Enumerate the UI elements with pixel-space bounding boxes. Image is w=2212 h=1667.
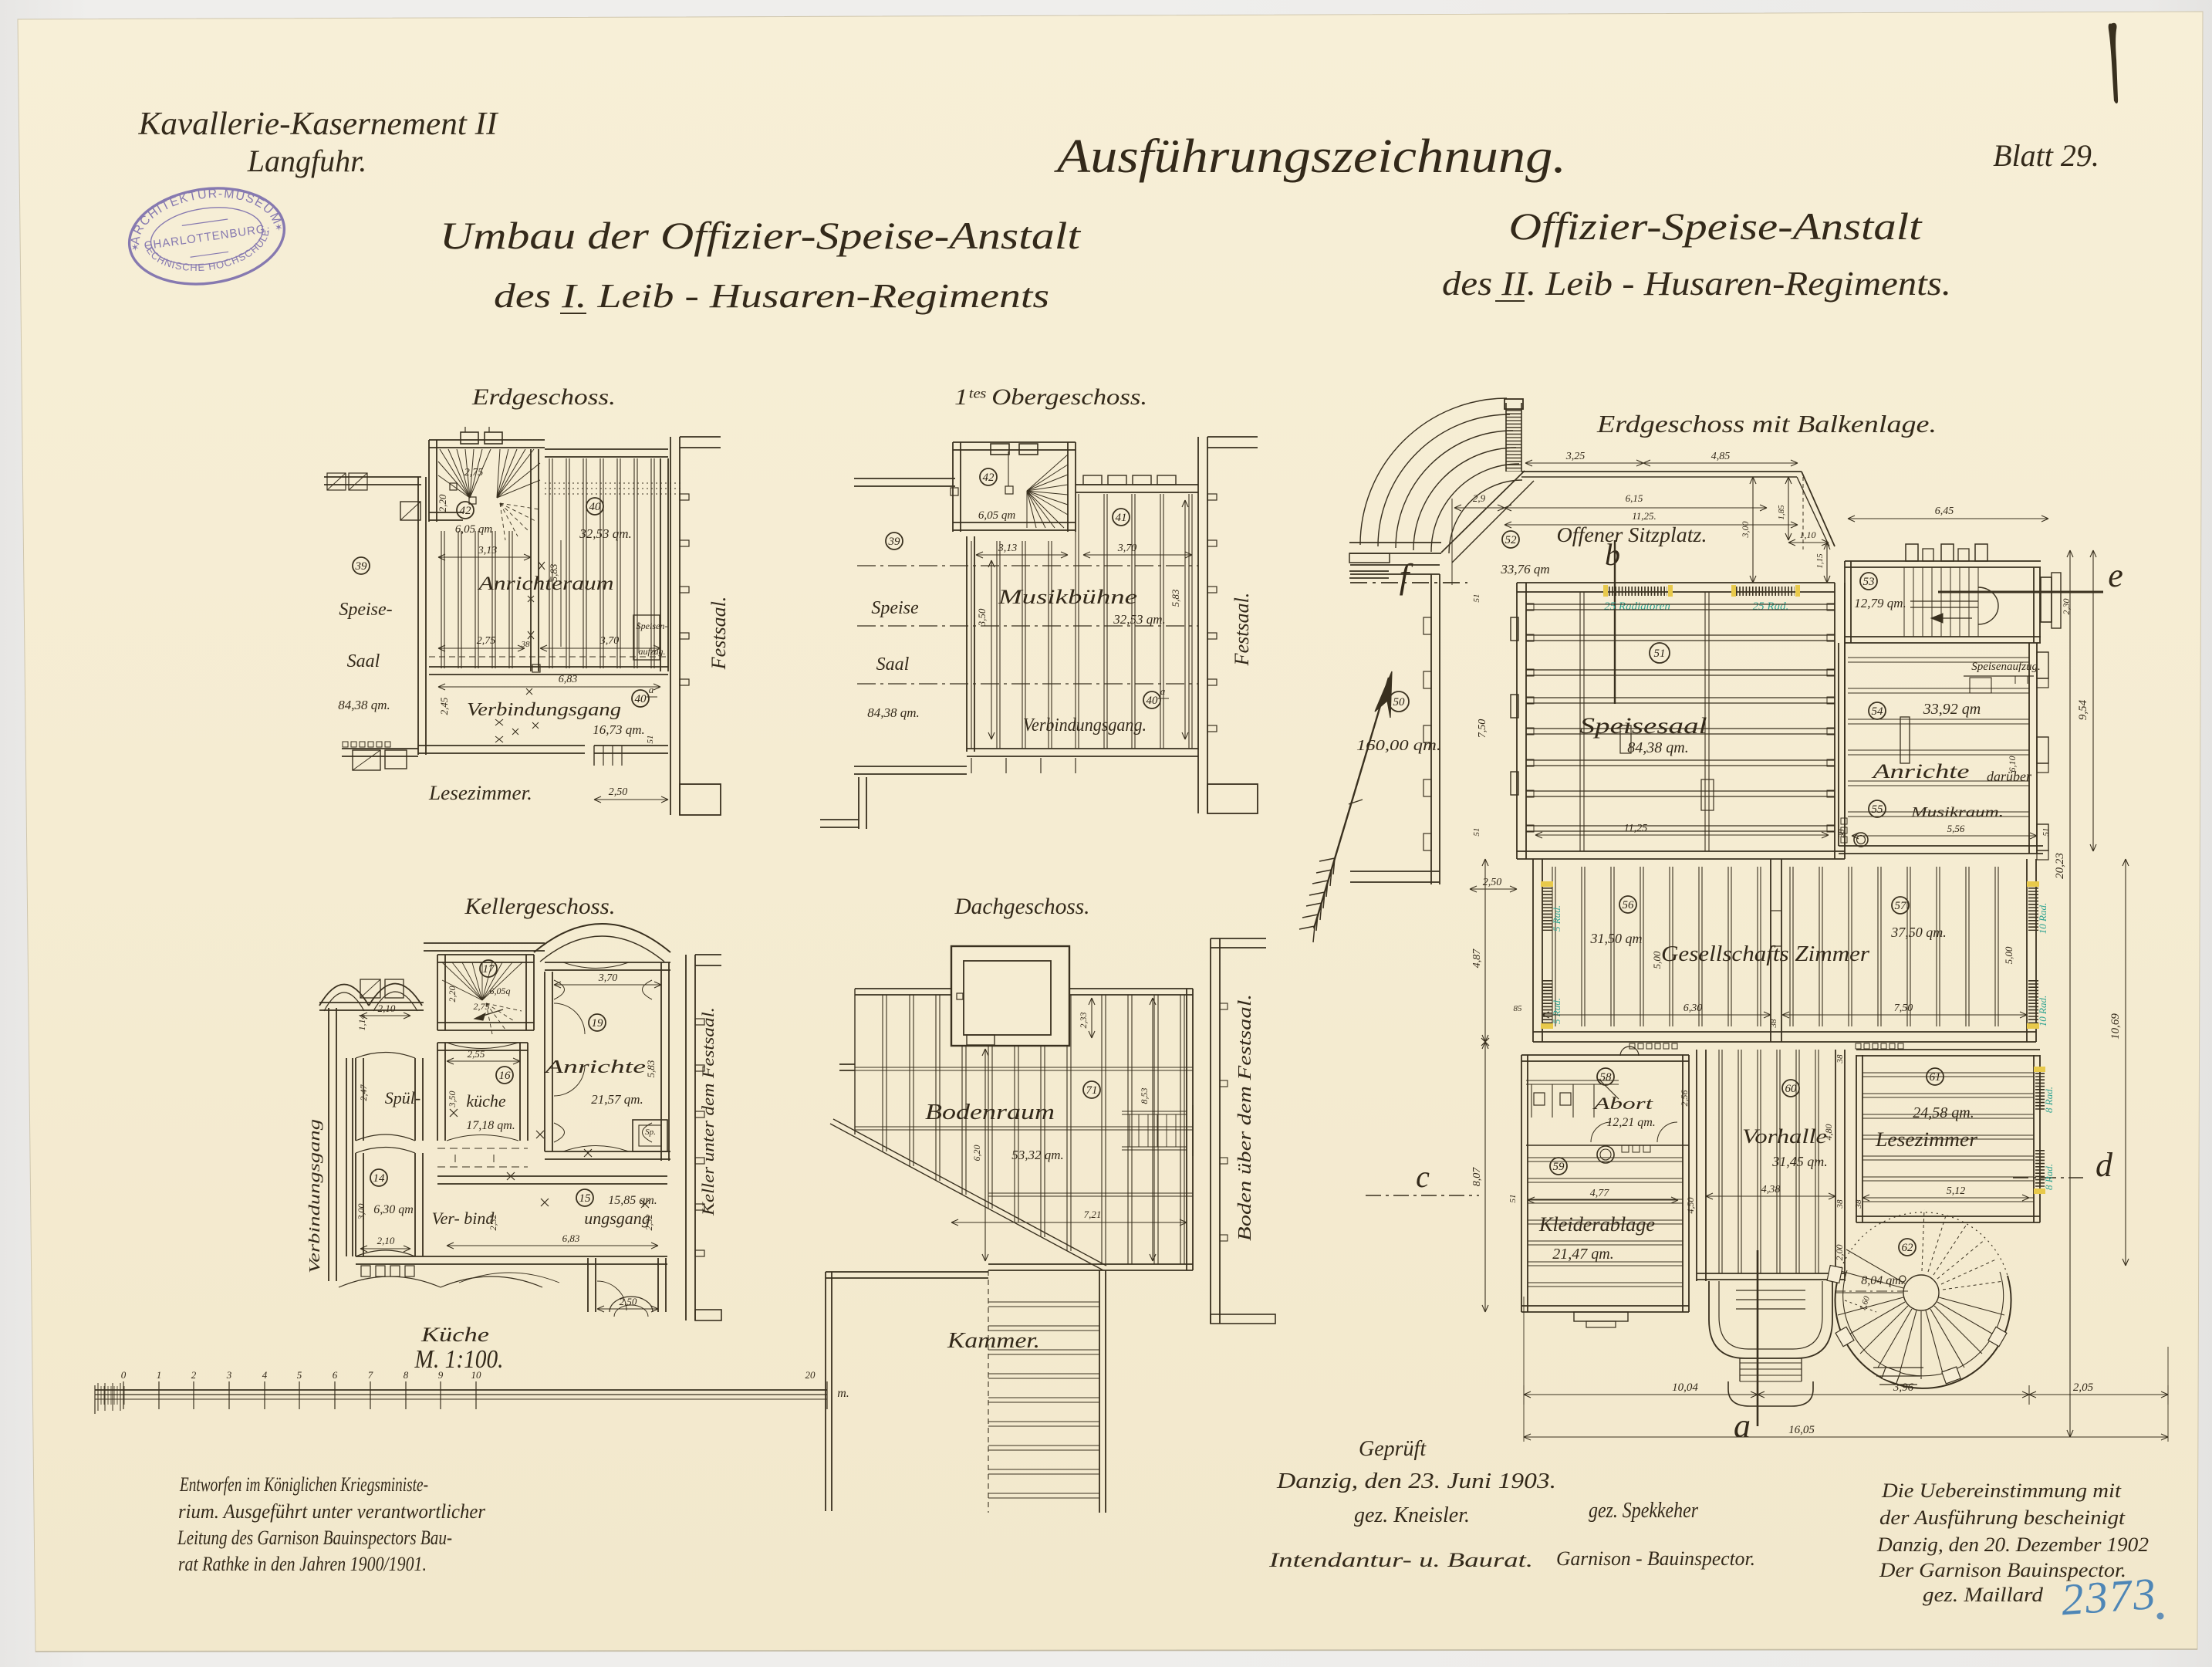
svg-text:0: 0 xyxy=(121,1369,127,1381)
svg-text:60: 60 xyxy=(1785,1083,1798,1095)
svg-text:51: 51 xyxy=(2041,828,2051,837)
svg-text:Anrichteraum: Anrichteraum xyxy=(477,573,614,594)
svg-text:15,85 qm.: 15,85 qm. xyxy=(608,1194,657,1207)
svg-text:84,38 qm.: 84,38 qm. xyxy=(867,705,920,720)
svg-text:71: 71 xyxy=(1086,1084,1098,1097)
svg-text:51: 51 xyxy=(1654,648,1666,660)
svg-text:3: 3 xyxy=(226,1369,232,1381)
svg-text:5,56: 5,56 xyxy=(1947,823,1965,834)
svg-text:Dachgeschoss.: Dachgeschoss. xyxy=(954,894,1090,919)
svg-text:3,13: 3,13 xyxy=(998,543,1018,554)
svg-text:Danzig, den 20. Dezember 1902: Danzig, den 20. Dezember 1902 xyxy=(1876,1533,2149,1556)
svg-text:10 Rad.: 10 Rad. xyxy=(2037,996,2048,1026)
svg-text:Speise: Speise xyxy=(871,598,919,618)
svg-text:Bodenraum: Bodenraum xyxy=(925,1101,1055,1124)
svg-text:ungsgang: ungsgang xyxy=(584,1209,650,1228)
svg-text:2,9: 2,9 xyxy=(1473,492,1486,504)
svg-text:Blatt 29.: Blatt 29. xyxy=(1993,138,2099,173)
svg-text:54: 54 xyxy=(1872,705,1884,718)
svg-text:15: 15 xyxy=(579,1192,592,1205)
svg-text:40: 40 xyxy=(1147,695,1159,707)
svg-text:rium. Ausgeführt unter verant: rium. Ausgeführt unter verantwortlicher xyxy=(178,1500,486,1523)
svg-text:8,53: 8,53 xyxy=(1139,1088,1150,1104)
svg-text:Ausführungszeichnung.: Ausführungszeichnung. xyxy=(1053,130,1566,183)
svg-text:4: 4 xyxy=(262,1369,268,1381)
svg-text:5,00: 5,00 xyxy=(2003,946,2014,964)
svg-text:14: 14 xyxy=(373,1172,386,1185)
svg-text:85: 85 xyxy=(1514,1004,1523,1013)
svg-text:6,05 qm: 6,05 qm xyxy=(978,509,1016,522)
svg-text:Anrichte: Anrichte xyxy=(1871,760,1970,783)
svg-text:5,00: 5,00 xyxy=(1651,951,1663,969)
svg-text:4,85: 4,85 xyxy=(1711,451,1731,462)
svg-text:a: a xyxy=(1734,1407,1751,1445)
svg-text:11,25: 11,25 xyxy=(1624,823,1647,834)
svg-text:7,50: 7,50 xyxy=(1894,1003,1913,1014)
svg-text:7,50: 7,50 xyxy=(1477,719,1488,739)
svg-text:✶: ✶ xyxy=(274,221,284,233)
svg-text:2,56: 2,56 xyxy=(1679,1090,1690,1107)
svg-text:5,83: 5,83 xyxy=(1170,589,1181,607)
svg-text:8: 8 xyxy=(404,1369,409,1381)
svg-text:38: 38 xyxy=(1769,1019,1778,1029)
svg-text:Offener Sitzplatz.: Offener Sitzplatz. xyxy=(1557,523,1707,546)
svg-text:M. 1:100.: M. 1:100. xyxy=(414,1345,504,1374)
svg-text:5: 5 xyxy=(297,1369,302,1381)
svg-text:21,57 qm.: 21,57 qm. xyxy=(591,1092,643,1107)
svg-text:Festsaal.: Festsaal. xyxy=(708,597,730,671)
svg-text:84,38 qm.: 84,38 qm. xyxy=(338,698,390,712)
svg-text:38: 38 xyxy=(1854,1199,1863,1209)
svg-text:8,04 qm.: 8,04 qm. xyxy=(1861,1274,1904,1287)
svg-text:Festsaal.: Festsaal. xyxy=(1231,593,1253,667)
svg-text:17,18 qm.: 17,18 qm. xyxy=(466,1119,515,1132)
svg-text:Saal: Saal xyxy=(347,651,380,671)
svg-text:10 Rad.: 10 Rad. xyxy=(2037,903,2048,934)
svg-text:6,15: 6,15 xyxy=(1626,492,1643,504)
svg-text:Die Uebereinstimmung mit: Die Uebereinstimmung mit xyxy=(1881,1479,2122,1502)
svg-text:d: d xyxy=(2095,1146,2113,1184)
svg-text:gez. Spekkeher: gez. Spekkeher xyxy=(1589,1499,1698,1523)
svg-text:39: 39 xyxy=(888,536,901,548)
svg-text:2: 2 xyxy=(191,1369,197,1381)
svg-text:6,45: 6,45 xyxy=(1935,506,1954,517)
svg-text:6,83: 6,83 xyxy=(559,674,578,685)
svg-text:6,10: 6,10 xyxy=(2007,756,2018,773)
svg-text:53: 53 xyxy=(1863,576,1875,588)
svg-text:2,50: 2,50 xyxy=(609,786,628,798)
svg-text:1,85: 1,85 xyxy=(1777,505,1786,520)
svg-text:51: 51 xyxy=(1508,1195,1518,1203)
svg-text:41: 41 xyxy=(1116,512,1127,524)
svg-text:Speise-: Speise- xyxy=(339,600,392,620)
svg-text:9: 9 xyxy=(438,1369,444,1381)
svg-text:Umbau der Offizier-Speise-Anst: Umbau der Offizier-Speise-Anstalt xyxy=(440,214,1081,257)
svg-text:Saal: Saal xyxy=(876,654,910,675)
svg-text:40: 40 xyxy=(589,501,602,513)
svg-text:3,25: 3,25 xyxy=(1565,451,1586,462)
svg-text:5,83: 5,83 xyxy=(645,1060,657,1077)
svg-text:Vorhalle: Vorhalle xyxy=(1742,1125,1827,1148)
svg-text:der Ausführung bescheinigt: der Ausführung bescheinigt xyxy=(1879,1506,2126,1529)
svg-text:21,47 qm.: 21,47 qm. xyxy=(1552,1246,1613,1263)
svg-text:51: 51 xyxy=(646,735,655,744)
svg-text:52: 52 xyxy=(1505,534,1518,546)
svg-text:51: 51 xyxy=(1472,828,1481,837)
svg-text:11,25.: 11,25. xyxy=(1632,510,1656,522)
svg-text:6,05 qm: 6,05 qm xyxy=(455,523,493,536)
svg-text:16,73 qm.: 16,73 qm. xyxy=(593,722,645,737)
svg-text:Verbindungsgang: Verbindungsgang xyxy=(467,700,621,720)
svg-text:38: 38 xyxy=(1835,1054,1845,1064)
svg-text:57: 57 xyxy=(1895,900,1908,912)
svg-text:e: e xyxy=(2108,556,2123,594)
svg-text:84,38 qm.: 84,38 qm. xyxy=(1627,739,1688,756)
svg-text:Langfuhr.: Langfuhr. xyxy=(247,144,367,178)
svg-text:Speisen-: Speisen- xyxy=(637,620,668,631)
svg-text:1ᵗᵉˢ Obergeschoss.: 1ᵗᵉˢ Obergeschoss. xyxy=(954,384,1147,410)
svg-text:53,32 qm.: 53,32 qm. xyxy=(1011,1148,1064,1162)
svg-text:des II. Leib - Husaren-Regi: des II. Leib - Husaren-Regiments. xyxy=(1442,265,1951,303)
svg-text:Erdgeschoss.: Erdgeschoss. xyxy=(471,384,616,410)
svg-text:31,50 qm: 31,50 qm xyxy=(1590,931,1643,946)
svg-text:b: b xyxy=(1605,537,1620,572)
svg-text:✶: ✶ xyxy=(130,241,140,253)
svg-text:gez. Kneisler.: gez. Kneisler. xyxy=(1354,1503,1470,1527)
svg-text:2,33: 2,33 xyxy=(1078,1013,1089,1029)
svg-text:c: c xyxy=(1416,1159,1430,1194)
svg-text:1: 1 xyxy=(157,1369,162,1381)
svg-text:1,14: 1,14 xyxy=(356,1015,367,1031)
svg-text:Danzig, den 23. Juni 1903.: Danzig, den 23. Juni 1903. xyxy=(1276,1469,1556,1493)
svg-text:4,77: 4,77 xyxy=(1590,1188,1610,1199)
svg-text:37,50 qm.: 37,50 qm. xyxy=(1890,925,1947,940)
svg-text:8 Rad.: 8 Rad. xyxy=(2043,1164,2055,1190)
svg-text:4,80: 4,80 xyxy=(1823,1124,1834,1141)
svg-text:2,32: 2,32 xyxy=(643,1215,654,1231)
svg-text:Sp.: Sp. xyxy=(645,1128,656,1137)
svg-text:6,20: 6,20 xyxy=(971,1145,982,1161)
svg-text:6,30: 6,30 xyxy=(1683,1003,1703,1014)
svg-text:33,92 qm: 33,92 qm xyxy=(1923,701,1981,718)
svg-text:3,70: 3,70 xyxy=(599,635,620,647)
svg-text:Geprüft: Geprüft xyxy=(1359,1437,1427,1461)
svg-text:58: 58 xyxy=(1600,1071,1613,1084)
svg-text:4,50: 4,50 xyxy=(1685,1198,1696,1214)
svg-text:m.: m. xyxy=(837,1387,849,1400)
svg-text:Leitung des Garnison Bauinspec: Leitung des Garnison Bauinspectors Bau- xyxy=(177,1527,452,1549)
svg-text:17: 17 xyxy=(483,963,496,976)
svg-text:8,07: 8,07 xyxy=(1471,1167,1483,1187)
svg-text:Verbindungsgang.: Verbindungsgang. xyxy=(1023,715,1147,735)
svg-text:Kleiderablage: Kleiderablage xyxy=(1538,1213,1655,1236)
svg-text:160,00 qm.: 160,00 qm. xyxy=(1356,737,1441,754)
svg-text:2,32: 2,32 xyxy=(488,1215,498,1231)
svg-text:3,13: 3,13 xyxy=(478,545,498,556)
svg-text:42: 42 xyxy=(983,472,995,484)
svg-text:Musikraum.: Musikraum. xyxy=(1910,804,2004,820)
svg-text:5,83: 5,83 xyxy=(548,563,559,581)
svg-text:9,54: 9,54 xyxy=(2077,699,2089,720)
svg-text:31,45 qm.: 31,45 qm. xyxy=(1771,1154,1828,1169)
svg-text:2,50: 2,50 xyxy=(620,1296,637,1307)
svg-text:2,55: 2,55 xyxy=(468,1048,485,1060)
svg-text:2,75: 2,75 xyxy=(474,1001,490,1012)
svg-text:62: 62 xyxy=(1902,1242,1914,1254)
svg-text:gez. Maillard: gez. Maillard xyxy=(1923,1584,2044,1606)
svg-text:3,00: 3,00 xyxy=(356,1204,366,1221)
svg-text:19: 19 xyxy=(592,1017,604,1030)
svg-text:aufzug.: aufzug. xyxy=(638,646,665,657)
svg-text:2373: 2373 xyxy=(2060,1568,2159,1625)
svg-text:7: 7 xyxy=(368,1369,373,1381)
svg-text:4,38: 4,38 xyxy=(1761,1184,1781,1195)
svg-text:2,10: 2,10 xyxy=(377,1235,395,1246)
svg-text:50: 50 xyxy=(1393,696,1406,708)
svg-text:Boden über dem Festsaal.: Boden über dem Festsaal. xyxy=(1235,994,1255,1241)
svg-text:Entworfen im Königlichen Krieg: Entworfen im Königlichen Kriegsministe- xyxy=(179,1473,428,1496)
svg-text:Verbindungsgang: Verbindungsgang xyxy=(306,1119,323,1273)
svg-text:Garnison - Bauinspector.: Garnison - Bauinspector. xyxy=(1556,1547,1755,1570)
svg-text:4,87: 4,87 xyxy=(1471,948,1483,969)
svg-text:Erdgeschoss mit Balkenlage.: Erdgeschoss mit Balkenlage. xyxy=(1596,410,1937,438)
svg-text:61: 61 xyxy=(1930,1071,1941,1084)
svg-text:25 Radiatoren: 25 Radiatoren xyxy=(1604,600,1670,613)
svg-text:3,70: 3,70 xyxy=(598,972,618,984)
svg-text:38: 38 xyxy=(1835,1199,1845,1209)
svg-text:12,21 qm.: 12,21 qm. xyxy=(1606,1116,1656,1129)
svg-text:51: 51 xyxy=(1472,594,1481,603)
svg-text:Intendantur- u. Baurat.: Intendantur- u. Baurat. xyxy=(1268,1549,1533,1571)
svg-text:12,79 qm.: 12,79 qm. xyxy=(1854,596,1906,610)
svg-text:1,15: 1,15 xyxy=(1815,553,1825,569)
svg-text:Offizier-Speise-Anstalt: Offizier-Speise-Anstalt xyxy=(1509,205,1923,248)
svg-text:2,00: 2,00 xyxy=(1834,1245,1845,1261)
svg-text:6: 6 xyxy=(333,1369,338,1381)
svg-text:10,04: 10,04 xyxy=(1672,1381,1698,1394)
svg-text:32,53 qm.: 32,53 qm. xyxy=(1113,612,1166,627)
svg-text:32,53 qm.: 32,53 qm. xyxy=(579,526,632,541)
svg-text:33,76 qm: 33,76 qm xyxy=(1500,562,1549,577)
svg-text:Abort: Abort xyxy=(1592,1094,1653,1113)
svg-text:16,05: 16,05 xyxy=(1788,1424,1815,1436)
svg-text:20,23: 20,23 xyxy=(2054,853,2066,879)
svg-text:6,83: 6,83 xyxy=(562,1232,580,1244)
svg-text:2,10: 2,10 xyxy=(378,1003,396,1014)
svg-text:24,58 qm.: 24,58 qm. xyxy=(1913,1104,1974,1121)
svg-text:Speisesaal: Speisesaal xyxy=(1580,713,1707,739)
svg-text:5 Rad.: 5 Rad. xyxy=(1551,998,1562,1024)
svg-text:3,50: 3,50 xyxy=(976,608,988,627)
svg-text:Küche: Küche xyxy=(420,1324,489,1346)
svg-text:Lesezimmer.: Lesezimmer. xyxy=(428,782,532,804)
svg-text:2,45: 2,45 xyxy=(438,697,450,715)
svg-text:39: 39 xyxy=(355,560,368,573)
svg-text:3,70: 3,70 xyxy=(1117,543,1137,554)
svg-text:10: 10 xyxy=(471,1369,482,1381)
svg-text:8 Rad.: 8 Rad. xyxy=(2043,1087,2055,1113)
svg-text:2,20: 2,20 xyxy=(437,494,448,512)
svg-text:Keller unter dem Festsaal.: Keller unter dem Festsaal. xyxy=(698,1007,718,1216)
svg-text:Gesellschafts Zimmer: Gesellschafts Zimmer xyxy=(1661,942,1869,966)
svg-text:Kavallerie-Kasernement II: Kavallerie-Kasernement II xyxy=(137,107,498,142)
svg-text:rat Rathke in den Jahren 1900/: rat Rathke in den Jahren 1900/1901. xyxy=(178,1553,427,1575)
svg-text:2,20: 2,20 xyxy=(447,986,458,1003)
svg-text:55: 55 xyxy=(1872,803,1884,816)
svg-text:2,75: 2,75 xyxy=(477,635,496,647)
svg-text:3,50: 3,50 xyxy=(447,1091,458,1108)
svg-text:a: a xyxy=(649,684,654,695)
svg-text:25 Rad.: 25 Rad. xyxy=(1753,600,1789,613)
svg-text:3,96: 3,96 xyxy=(1893,1381,1914,1394)
svg-text:20: 20 xyxy=(805,1369,816,1381)
svg-text:6,05q: 6,05q xyxy=(490,986,511,996)
svg-text:59: 59 xyxy=(1553,1161,1565,1173)
svg-text:3,00: 3,00 xyxy=(1740,522,1751,539)
svg-text:5 Rad.: 5 Rad. xyxy=(1551,905,1562,932)
svg-text:a: a xyxy=(1160,685,1166,697)
svg-text:Ver- bind: Ver- bind xyxy=(432,1209,495,1228)
svg-text:42: 42 xyxy=(460,505,472,517)
svg-text:38: 38 xyxy=(521,640,531,649)
svg-text:Kammer.: Kammer. xyxy=(947,1329,1040,1353)
svg-text:Anrichte: Anrichte xyxy=(543,1057,647,1077)
svg-text:6,30 qm: 6,30 qm xyxy=(373,1203,414,1216)
svg-text:56: 56 xyxy=(1623,899,1635,911)
svg-text:1,10: 1,10 xyxy=(1800,529,1816,540)
svg-text:2,47: 2,47 xyxy=(358,1084,369,1101)
svg-text:Kellergeschoss.: Kellergeschoss. xyxy=(464,894,615,919)
svg-text:40: 40 xyxy=(635,693,647,705)
svg-text:küche: küche xyxy=(466,1091,506,1111)
svg-text:Musikbühne: Musikbühne xyxy=(998,586,1137,608)
svg-text:7,21: 7,21 xyxy=(1084,1209,1102,1220)
svg-text:Lesezimmer: Lesezimmer xyxy=(1875,1128,1978,1151)
svg-text:2,05: 2,05 xyxy=(2073,1381,2094,1394)
svg-text:des I. Leib - Husaren-Regim: des I. Leib - Husaren-Regiments xyxy=(494,277,1049,315)
svg-text:5,12: 5,12 xyxy=(1947,1185,1966,1197)
svg-text:10,69: 10,69 xyxy=(2109,1013,2122,1040)
svg-text:2,75: 2,75 xyxy=(464,467,484,478)
svg-text:16: 16 xyxy=(499,1070,512,1082)
